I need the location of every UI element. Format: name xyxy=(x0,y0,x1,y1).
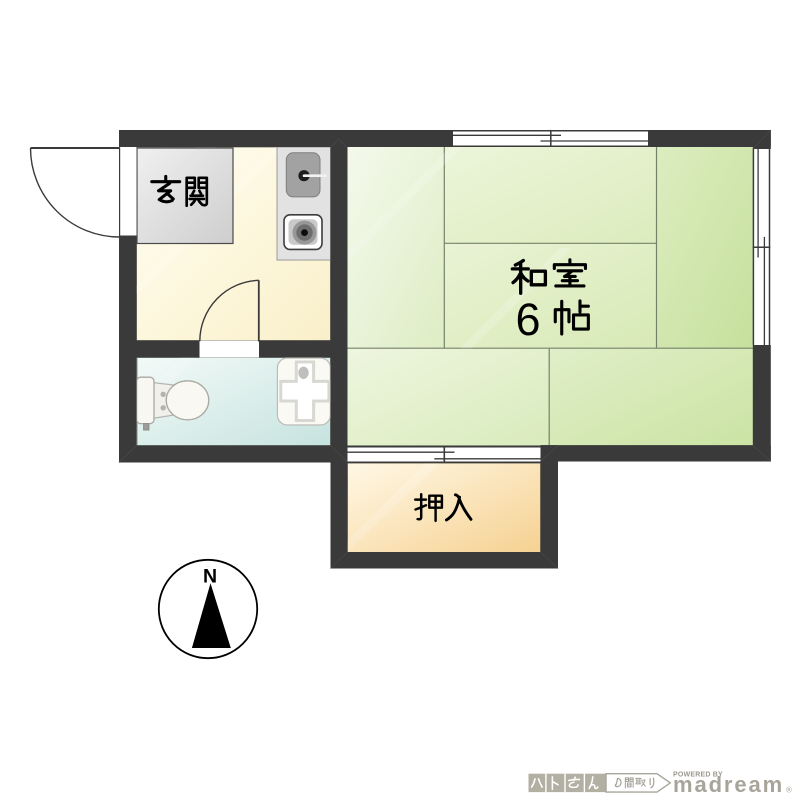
svg-text:6: 6 xyxy=(515,294,540,345)
svg-text:madream: madream xyxy=(673,772,784,797)
svg-text:N: N xyxy=(203,566,217,588)
svg-text:®: ® xyxy=(786,786,792,795)
